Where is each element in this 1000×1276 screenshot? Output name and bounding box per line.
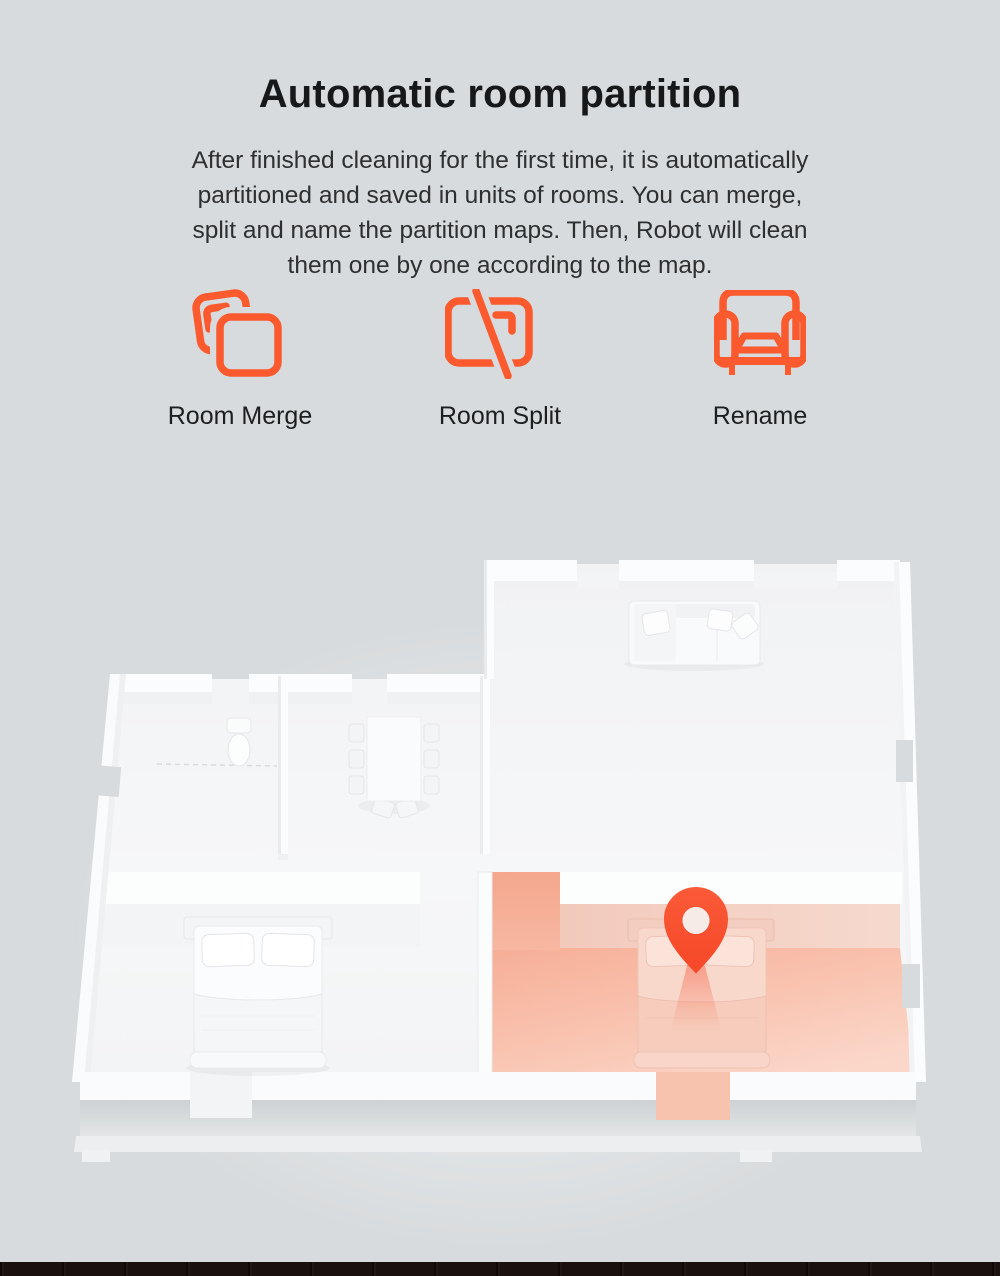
highlighted-room-doorway (490, 872, 560, 950)
bedroom-divider-wall (478, 872, 492, 1082)
sofa (624, 601, 764, 671)
right-wall-opening (902, 964, 920, 1008)
rename-icon (714, 290, 806, 378)
left-wall-opening (91, 765, 122, 797)
page-background: Automatic room partition After finished … (0, 0, 1000, 1276)
pin-hole (683, 907, 710, 934)
description-line: partitioned and saved in units of rooms.… (0, 178, 1000, 213)
toilet (227, 718, 251, 766)
bottom-wall-doorway (190, 1072, 252, 1118)
bed-left (184, 917, 332, 1076)
section-description: After finished cleaning for the first ti… (0, 143, 1000, 283)
feature-room-merge: Room Merge (110, 282, 370, 431)
feature-room-split: Room Split (370, 282, 630, 431)
feature-rename: Rename (630, 282, 890, 431)
bottom-wall-doorway-highlighted (656, 1072, 730, 1120)
bottom-wall (74, 1072, 922, 1162)
feature-label: Room Split (439, 402, 561, 431)
feature-list: Room Merge Room Split (110, 282, 890, 431)
description-line: After finished cleaning for the first ti… (0, 143, 1000, 178)
dining-table (349, 717, 439, 819)
feature-label: Room Merge (168, 402, 313, 431)
description-line: them one by one according to the map. (0, 248, 1000, 283)
room-split-icon (445, 289, 555, 379)
floorplan-illustration (72, 554, 928, 1166)
right-wall-opening (896, 740, 913, 782)
section-header: Automatic room partition After finished … (0, 0, 1000, 283)
next-section-dark-edge (0, 1262, 1000, 1276)
room-merge-icon (190, 287, 290, 381)
page-title: Automatic room partition (0, 0, 1000, 117)
feature-label: Rename (713, 402, 808, 431)
description-line: split and name the partition maps. Then,… (0, 213, 1000, 248)
